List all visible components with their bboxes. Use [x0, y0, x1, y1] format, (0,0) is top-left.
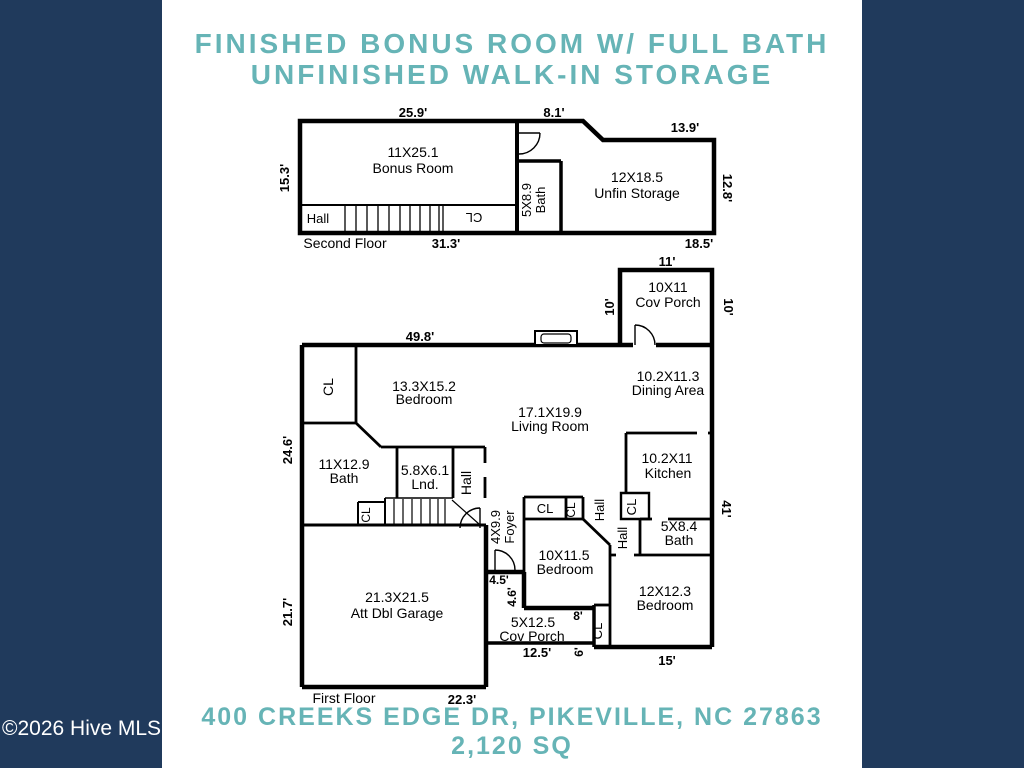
ff-porch-top-name: Cov Porch: [635, 294, 700, 310]
sf-dim-top-mid: 8.1': [543, 105, 564, 120]
ff-bedroom10-name: Bedroom: [537, 561, 594, 577]
ff-dim-15: 15': [658, 653, 676, 668]
listing-area: 2,120 SQ: [150, 732, 874, 761]
ff-dim-6: 6': [572, 647, 586, 657]
ff-bedroom10-diagonal-wall: [583, 519, 610, 545]
ff-living-name: Living Room: [511, 418, 589, 434]
listing-address: 400 CREEKS EDGE DR, PIKEVILLE, NC 27863: [150, 703, 874, 732]
listing-footer: 400 CREEKS EDGE DR, PIKEVILLE, NC 27863 …: [150, 703, 874, 761]
ff-front-door-arc: [635, 325, 655, 345]
ff-cl-bed12-label: CL: [590, 623, 605, 640]
sf-dim-bottom-right: 18.5': [685, 236, 713, 251]
ff-cl-northwest: CL: [320, 378, 336, 396]
sf-bath-dim: 5X8.9: [519, 183, 534, 217]
sf-dim-top-right: 13.9': [671, 120, 699, 135]
sf-bonus-room-dim: 11X25.1: [387, 144, 438, 160]
ff-garage-name: Att Dbl Garage: [351, 605, 444, 621]
ff-hall-mid-lower-label: Hall: [615, 527, 630, 550]
ff-laundry-name: Lnd.: [411, 476, 438, 492]
sf-storage-dim: 12X18.5: [611, 169, 663, 185]
ff-bath5-name: Bath: [665, 532, 694, 548]
sf-bath-name: Bath: [533, 187, 548, 214]
ff-dim-left-lower: 21.7': [280, 598, 295, 626]
ff-dim-4-5: 4.5': [489, 573, 509, 587]
sf-cl-label: CL: [466, 210, 483, 225]
ff-foyer-name: Foyer: [502, 510, 517, 544]
ff-dim-top: 49.8': [406, 329, 434, 344]
sf-hall-label: Hall: [307, 211, 330, 226]
ff-bedroom12-name: Bedroom: [637, 597, 694, 613]
ff-kitchen-name: Kitchen: [645, 465, 692, 481]
sf-bonus-room-name: Bonus Room: [373, 160, 454, 176]
ff-kitchen-dim: 10.2X11: [641, 450, 692, 466]
ff-garage-dim: 21.3X21.5: [365, 589, 429, 605]
ff-hall-mid-upper-label: Hall: [592, 499, 607, 522]
ff-porch-top-dim: 11': [659, 254, 676, 269]
ff-porch-bottom-name: Cov Porch: [499, 628, 564, 644]
sf-bath-door-arc: [519, 133, 540, 154]
ff-porch-top-dim-right: 10': [721, 298, 736, 316]
ff-cl-kitchen-label: CL: [624, 499, 639, 516]
ff-porch-top-dim-left: 10': [602, 298, 617, 316]
sf-dim-right: 12.8': [720, 174, 735, 202]
sf-stairs: [345, 206, 443, 231]
ff-dim-8: 8': [573, 609, 583, 623]
sf-dim-top-left: 25.9': [399, 105, 427, 120]
sf-floor-name: Second Floor: [303, 235, 387, 251]
ff-porch-top-size: 10X11: [648, 279, 688, 295]
ff-cl-bed10-wide-label: CL: [537, 501, 554, 516]
ff-dim-12-5: 12.5': [523, 645, 551, 660]
ff-hall-west-label: Hall: [458, 471, 474, 495]
ff-dim-right: 41': [719, 500, 734, 518]
ff-bath11-name: Bath: [330, 470, 359, 486]
ff-foyer-door-arc: [495, 550, 515, 570]
sf-dim-bottom-left: 31.3': [432, 236, 460, 251]
ff-dim-4-6: 4.6': [505, 587, 519, 607]
sf-dim-left: 15.3': [277, 164, 292, 192]
mls-watermark: ©2026 Hive MLS: [2, 717, 192, 741]
ff-bedroom13-name: Bedroom: [396, 391, 453, 407]
ff-foyer-dim: 4X9.9: [488, 510, 503, 544]
plan-labels: 25.9'8.1'13.9'15.3'12.8'11X25.1Bonus Roo…: [277, 105, 736, 707]
ff-cl-bed10-narrow-label: CL: [564, 502, 578, 518]
ff-stairs: [385, 499, 479, 524]
ff-dim-left-upper: 24.6': [280, 436, 295, 464]
ff-dining-name: Dining Area: [632, 382, 705, 398]
floorplan-drawing: 25.9'8.1'13.9'15.3'12.8'11X25.1Bonus Roo…: [0, 0, 1024, 768]
ff-cl-stairs-label: CL: [359, 507, 373, 523]
sf-storage-name: Unfin Storage: [594, 185, 680, 201]
